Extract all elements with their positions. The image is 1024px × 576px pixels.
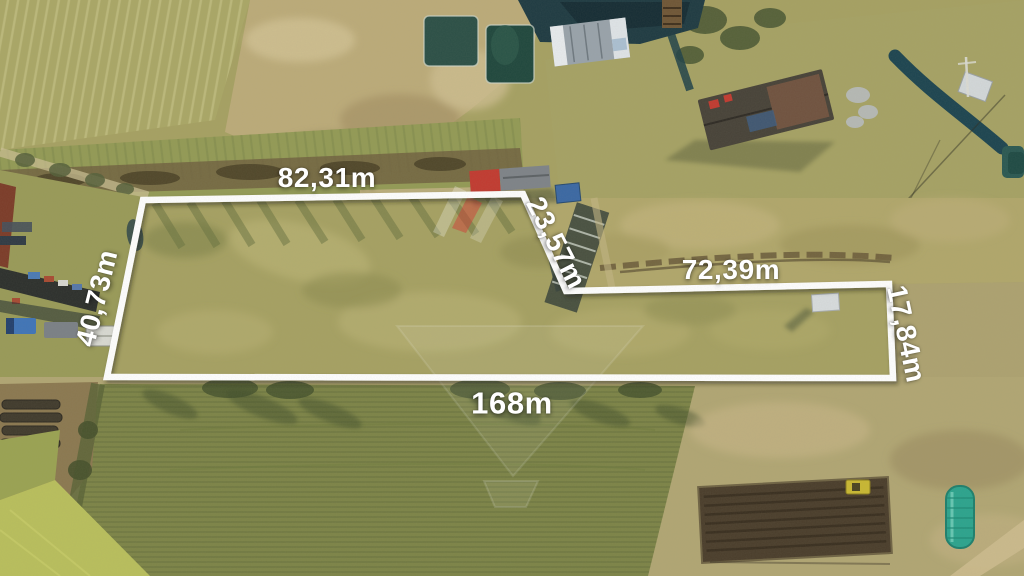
measurement-upper-right-edge: 72,39m <box>682 256 781 284</box>
measurement-labels: 82,31m 23,57m 72,39m 17,84m 40,73m 168m <box>0 0 1024 576</box>
measurement-right-edge: 17,84m <box>882 283 930 385</box>
aerial-photo: 82,31m 23,57m 72,39m 17,84m 40,73m 168m <box>0 0 1024 576</box>
measurement-bottom-edge: 168m <box>471 388 553 419</box>
measurement-top-edge: 82,31m <box>278 164 377 192</box>
measurement-diagonal-edge: 23,57m <box>521 193 591 294</box>
measurement-left-edge: 40,73m <box>71 247 122 349</box>
